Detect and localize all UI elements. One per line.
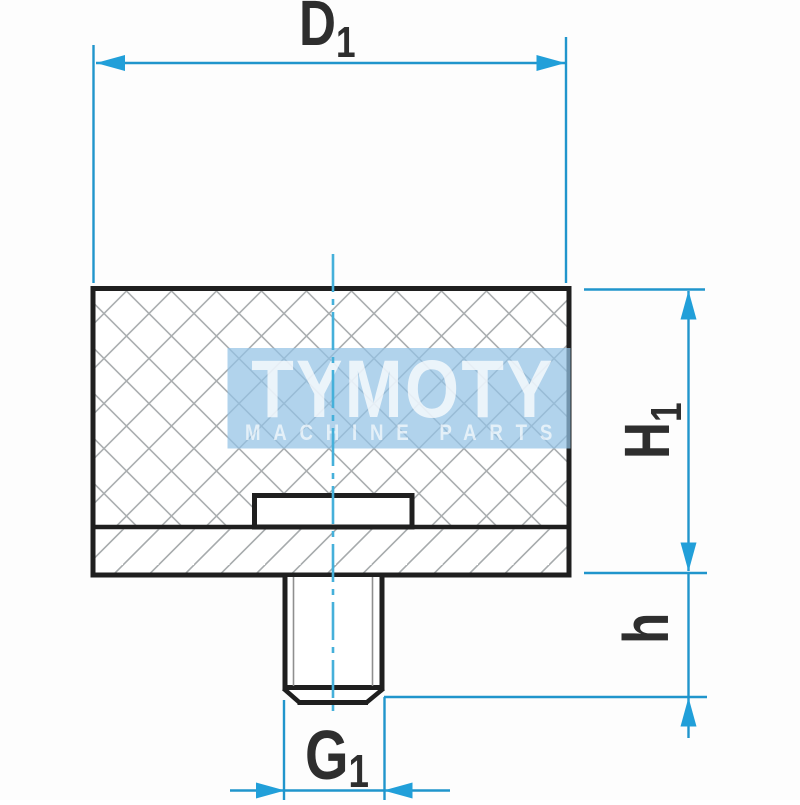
svg-text:h: h: [612, 613, 683, 644]
svg-text:MACHINE PARTS: MACHINE PARTS: [245, 422, 565, 446]
